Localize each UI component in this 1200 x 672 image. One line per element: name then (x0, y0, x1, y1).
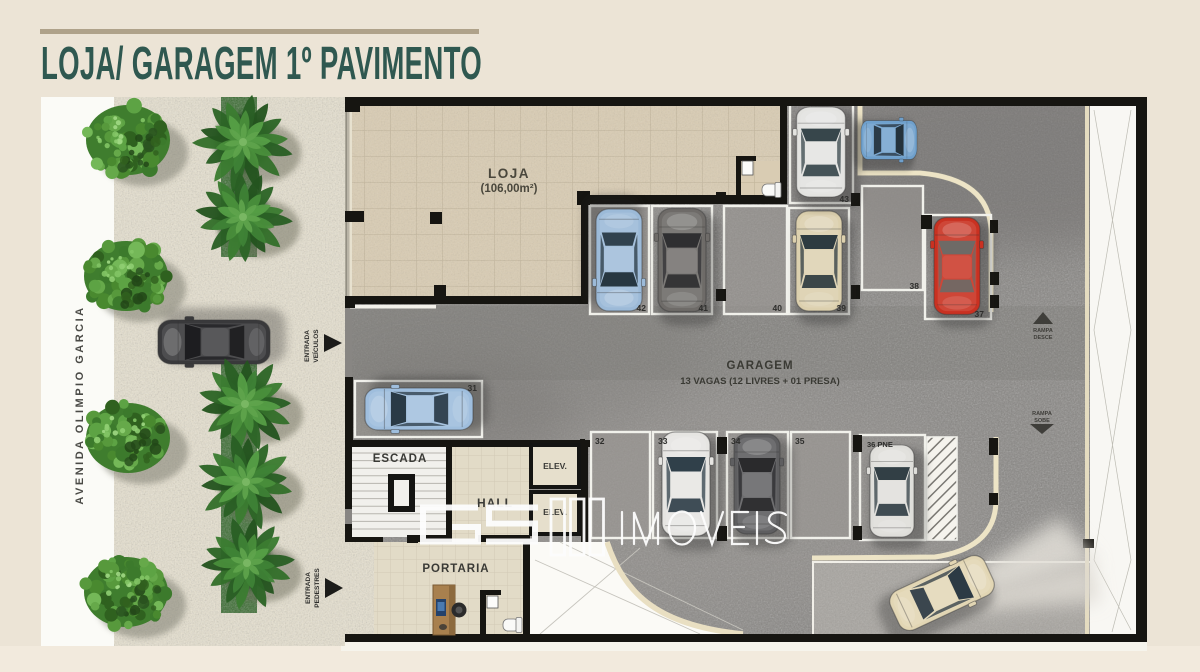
svg-text:13 VAGAS (12 LIVRES + 01 PRESA: 13 VAGAS (12 LIVRES + 01 PRESA) (680, 376, 840, 387)
svg-text:SOBE: SOBE (1034, 418, 1050, 424)
svg-text:ENTRADA: ENTRADA (305, 572, 312, 604)
svg-text:PORTARIA: PORTARIA (422, 563, 489, 575)
svg-text:ELEV.: ELEV. (543, 461, 567, 471)
svg-text:VEÍCULOS: VEÍCULOS (311, 329, 320, 363)
svg-text:36 PNE: 36 PNE (867, 440, 893, 449)
svg-text:ESCADA: ESCADA (373, 453, 428, 465)
svg-text:LOJA: LOJA (488, 166, 530, 181)
svg-text:39: 39 (837, 303, 847, 313)
svg-text:40: 40 (773, 303, 783, 313)
svg-text:35: 35 (795, 436, 805, 446)
svg-text:ENTRADA: ENTRADA (304, 330, 311, 362)
svg-text:42: 42 (637, 303, 647, 313)
svg-text:RAMPA: RAMPA (1032, 411, 1052, 417)
svg-text:43: 43 (840, 194, 850, 204)
svg-text:37: 37 (975, 309, 985, 319)
svg-text:GARAGEM: GARAGEM (726, 360, 793, 372)
svg-text:LOJA/ GARAGEM 1º PAVIMENTO: LOJA/ GARAGEM 1º PAVIMENTO (41, 39, 482, 90)
svg-text:31: 31 (468, 383, 478, 393)
svg-text:32: 32 (595, 436, 605, 446)
svg-text:33: 33 (658, 436, 668, 446)
svg-text:41: 41 (699, 303, 709, 313)
svg-text:PEDESTRES: PEDESTRES (314, 568, 321, 608)
svg-text:38: 38 (910, 281, 920, 291)
svg-text:34: 34 (731, 436, 741, 446)
svg-text:AVENIDA OLIMPIO GARCIA: AVENIDA OLIMPIO GARCIA (74, 305, 86, 504)
svg-text:DESCE: DESCE (1034, 335, 1053, 341)
svg-text:RAMPA: RAMPA (1033, 328, 1053, 334)
svg-text:(106,00m²): (106,00m²) (481, 183, 538, 195)
